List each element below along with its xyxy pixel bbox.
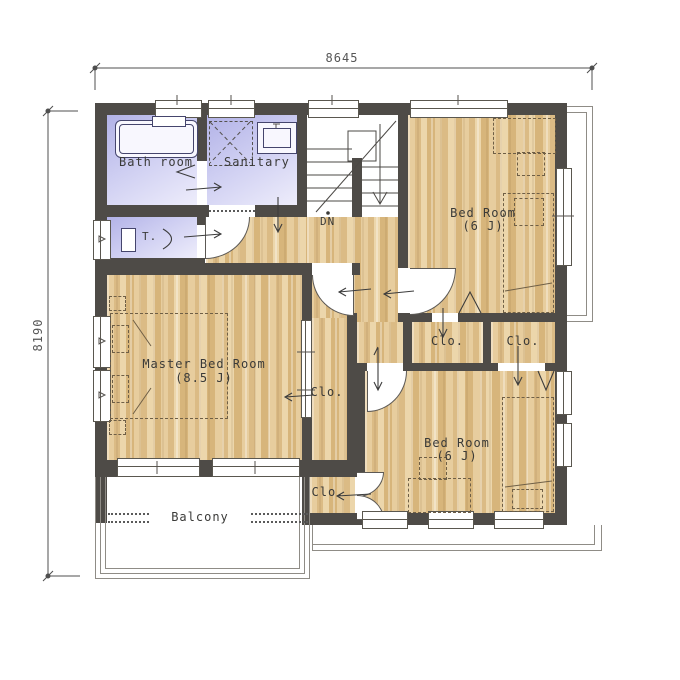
- wall-bath-sanitary: [197, 115, 207, 161]
- door-opening-master: [312, 263, 352, 275]
- label-bedroom1-size: (6 J): [423, 220, 543, 233]
- nightstand-master-2: [109, 420, 126, 435]
- wall-balcony-mullion: [198, 460, 212, 477]
- label-closet1: Clo.: [412, 335, 483, 348]
- window-master-left-1: [93, 316, 111, 368]
- window-bedroom2-right-2: [556, 423, 572, 467]
- desk-bedroom2: [408, 478, 471, 513]
- bed-master-pillow-1: [112, 325, 129, 353]
- wall-balcony-right: [298, 460, 360, 477]
- label-closet-master: Clo.: [304, 386, 350, 399]
- wall-bedroom1-bottom-b: [458, 313, 567, 322]
- window-toilet-left: [93, 220, 111, 260]
- label-closet-lower: Clo.: [304, 486, 352, 499]
- dim-dot-left-top: [46, 109, 50, 113]
- chair-bedroom1: [517, 152, 545, 176]
- dim-dot-top-left: [93, 66, 97, 70]
- wall-master-right-a: [302, 263, 312, 322]
- bathtub-ledge: [152, 116, 186, 127]
- wall-sanitary-bottom: [255, 205, 307, 217]
- dim-dot-left-bottom: [46, 574, 50, 578]
- window-sanitary-top: [208, 100, 255, 118]
- label-master-size: (8.5 J): [124, 372, 284, 385]
- sliding-window-balcony-2: [212, 458, 300, 477]
- label-sanitary: Sanitary: [224, 156, 290, 169]
- wall-bedroom2-left: [355, 363, 365, 475]
- wall-sanitary-stairs: [297, 115, 307, 217]
- nightstand-master-1: [109, 296, 126, 311]
- desk-bedroom1: [493, 118, 556, 154]
- label-balcony: Balcony: [150, 511, 250, 524]
- wall-master-top-hinge: [352, 263, 360, 275]
- sliding-window-balcony-1: [117, 458, 200, 477]
- sink-basin: [263, 128, 291, 148]
- window-bedroom2-right-1: [556, 371, 572, 415]
- wall-master-top: [107, 263, 312, 275]
- dimension-top: 8645: [292, 51, 392, 65]
- floor-plan: Bath room Sanitary T. DN Bed Room (6 J) …: [0, 0, 680, 680]
- wall-left: [95, 103, 107, 523]
- label-bedroom2-size: (6 J): [397, 450, 517, 463]
- label-master: Master Bed Room: [124, 358, 284, 371]
- wall-balcony-stub: [107, 460, 117, 477]
- bathtub-inner: [119, 124, 194, 154]
- dim-line-top: [95, 68, 592, 90]
- wall-bath-bottom: [95, 205, 209, 217]
- dimension-left: 8190: [31, 309, 45, 361]
- label-bath: Bath room: [119, 156, 193, 169]
- threshold-dotted-line: [209, 210, 255, 212]
- door-threshold-sanitary: [209, 205, 255, 217]
- hall-floor-lower: [357, 322, 403, 363]
- dim-dot-top-right: [590, 66, 594, 70]
- wall-bedroom1-left: [398, 103, 408, 268]
- window-bedroom1-top: [410, 100, 508, 118]
- label-toilet: T.: [142, 230, 157, 243]
- dim-line-left: [48, 111, 80, 576]
- bed-bedroom2-pillow: [512, 489, 543, 509]
- wall-stairs-center: [352, 158, 362, 217]
- window-master-left-2: [93, 370, 111, 422]
- label-stairs-dn: DN: [320, 215, 344, 228]
- wall-closetrow-bottom-b: [403, 363, 498, 371]
- eave-bottom-inner: [312, 525, 595, 545]
- wall-closetrow-bottom-c: [545, 363, 567, 371]
- door-opening-bedroom1: [398, 268, 410, 313]
- sliding-door-closet-master: [301, 320, 312, 418]
- toilet-tank: [121, 228, 136, 252]
- sink: [257, 122, 297, 154]
- window-stairs-top: [308, 100, 359, 118]
- label-closet2: Clo.: [491, 335, 555, 348]
- eave-right-inner: [567, 112, 587, 316]
